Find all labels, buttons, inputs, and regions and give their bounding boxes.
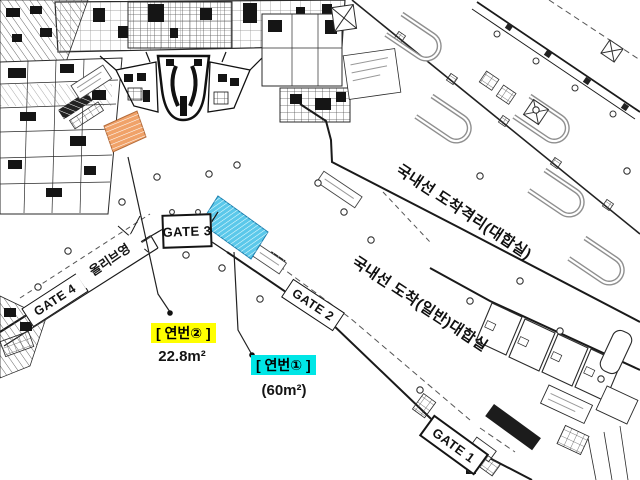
zone2-tag: [ 연번② ] bbox=[151, 323, 216, 343]
zone1-area-value: (60m²) bbox=[254, 383, 314, 398]
zone2-area-value: 22.8m² bbox=[154, 349, 210, 364]
lower-right-rooms bbox=[476, 303, 634, 401]
zone1-tag: [ 연번① ] bbox=[251, 355, 316, 375]
floor-plan-drawing bbox=[0, 0, 640, 480]
floor-plan-page: GATE 3 GATE 4 올리브영 GATE 2 GATE 1 국내선 도착격… bbox=[0, 0, 640, 480]
escalator-x-icon bbox=[331, 5, 356, 32]
gate3-label: GATE 3 bbox=[161, 213, 212, 249]
central-core bbox=[100, 52, 266, 120]
